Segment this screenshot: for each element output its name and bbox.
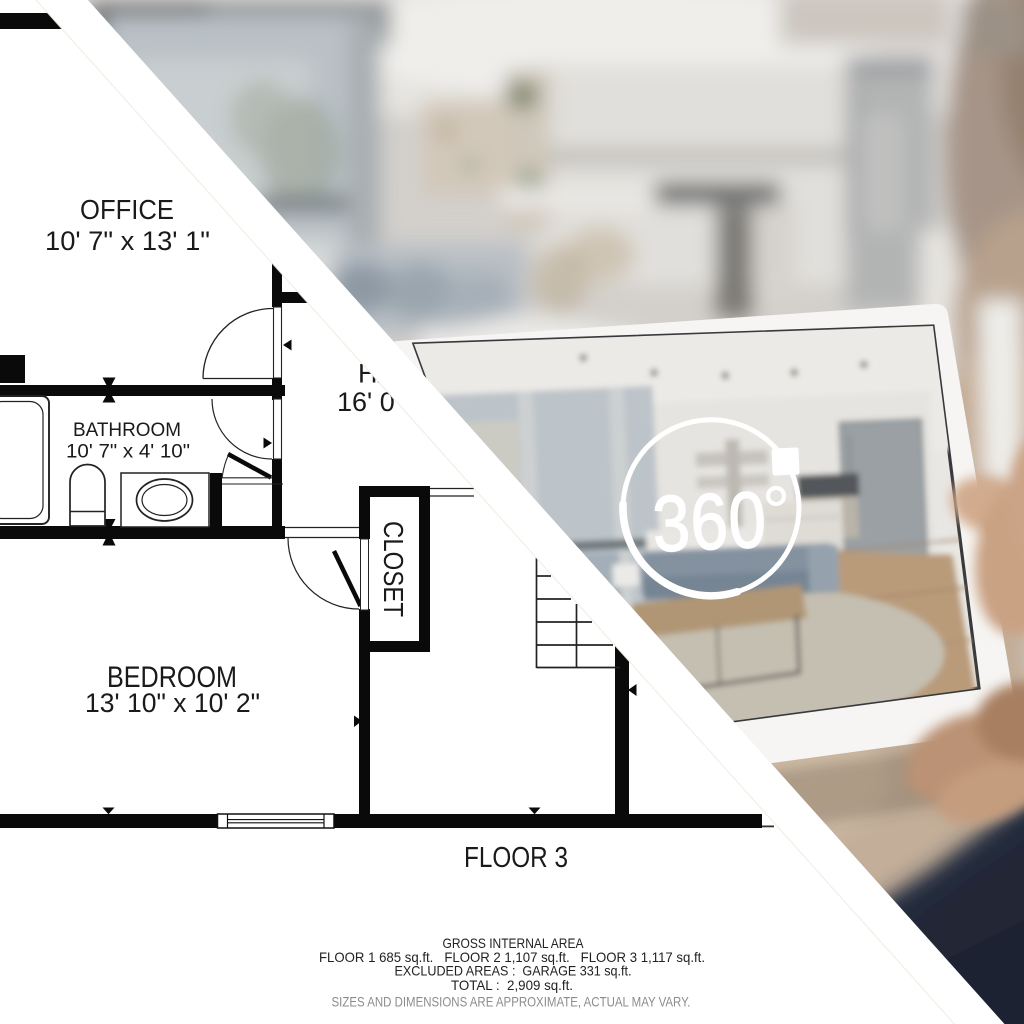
svg-text:SIZES AND DIMENSIONS ARE APPRO: SIZES AND DIMENSIONS ARE APPROXIMATE, AC…	[332, 994, 691, 1010]
svg-text:OFFICE: OFFICE	[80, 194, 174, 225]
svg-text:10' 7" x 13' 1": 10' 7" x 13' 1"	[45, 226, 210, 256]
svg-text:BATHROOM: BATHROOM	[73, 419, 181, 441]
svg-text:FLOOR 3: FLOOR 3	[464, 842, 568, 874]
svg-text:CLOSET: CLOSET	[378, 521, 409, 617]
svg-text:13' 10" x 10' 2": 13' 10" x 10' 2"	[85, 688, 260, 718]
svg-text:TOTAL : 2,909 sq.ft.: TOTAL : 2,909 sq.ft.	[451, 977, 573, 993]
svg-text:10' 7" x 4' 10": 10' 7" x 4' 10"	[66, 441, 190, 463]
svg-text:360: 360	[651, 474, 769, 568]
